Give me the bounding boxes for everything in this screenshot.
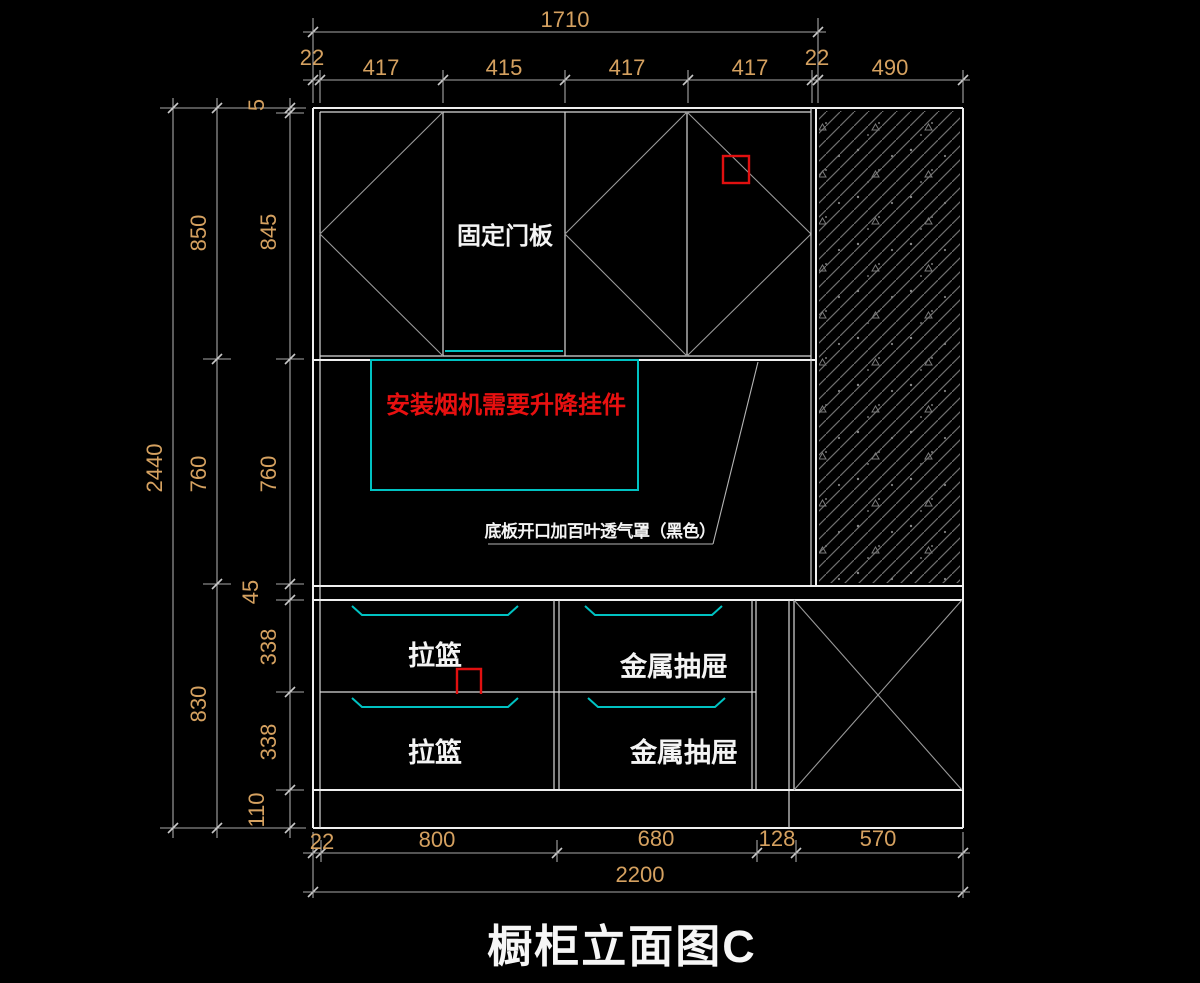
door-swing-left	[320, 112, 443, 356]
dim-bottom-128: 128	[759, 826, 796, 851]
dim-left-overall: 2440	[142, 444, 167, 493]
dim-left-45: 45	[238, 580, 263, 604]
drawing-title: 橱柜立面图C	[487, 921, 757, 972]
bottom-dimensions: 22 800 680 128 570 2200	[303, 826, 970, 898]
dim-top-22-right: 22	[805, 45, 829, 70]
handle-drawer-bottom	[588, 698, 725, 707]
door-swing-right	[687, 112, 811, 356]
dim-left-760-mid: 760	[186, 456, 211, 493]
dim-bottom-570: 570	[860, 826, 897, 851]
dim-left-760-inner: 760	[256, 456, 281, 493]
dim-top-417-3: 417	[732, 55, 769, 80]
vent-leader-line	[713, 362, 758, 544]
dim-left-338-top: 338	[256, 629, 281, 666]
dim-bottom-22: 22	[310, 829, 334, 854]
dim-bottom-overall: 2200	[616, 862, 665, 887]
elevation-drawing: 1710 22 417 415 417 417 22 490 2440 850 …	[0, 0, 1200, 983]
dim-top-490: 490	[872, 55, 909, 80]
dim-bottom-680: 680	[638, 826, 675, 851]
cabinet-structure	[313, 108, 963, 828]
red-marker-bottom	[457, 669, 481, 694]
dim-top-overall: 1710	[541, 7, 590, 32]
top-dimensions: 1710 22 417 415 417 417 22 490	[300, 7, 970, 103]
cad-canvas: 1710 22 417 415 417 417 22 490 2440 850 …	[0, 0, 1200, 983]
dim-left-5: 5	[244, 99, 269, 111]
dim-top-415: 415	[486, 55, 523, 80]
vent-note-label: 底板开口加百叶透气罩（黑色）	[485, 521, 716, 541]
metal-drawer-top-label: 金属抽屉	[619, 651, 728, 682]
left-dimensions: 2440 850 760 830 5 845 760 45 338 338 11…	[142, 98, 306, 838]
dim-left-110: 110	[244, 792, 269, 827]
dim-left-850: 850	[186, 215, 211, 252]
metal-drawer-bottom-label: 金属抽屉	[629, 737, 738, 768]
dim-left-845: 845	[256, 214, 281, 251]
dim-top-22-left: 22	[300, 45, 324, 70]
range-hood-box	[371, 360, 638, 490]
dim-bottom-800: 800	[419, 827, 456, 852]
dim-left-338-bottom: 338	[256, 724, 281, 761]
wall-hatch-spots	[819, 111, 960, 583]
door-swing-mid	[565, 112, 687, 356]
hood-note-label: 安装烟机需要升降挂件	[386, 391, 626, 419]
fixed-door-label: 固定门板	[457, 222, 554, 250]
handle-drawer-top	[585, 606, 722, 615]
dim-top-417-2: 417	[609, 55, 646, 80]
dim-top-417-1: 417	[363, 55, 400, 80]
pull-basket-top-label: 拉篮	[408, 640, 462, 671]
pull-basket-bottom-label: 拉篮	[408, 737, 462, 768]
handle-basket-top	[352, 606, 518, 615]
dim-left-830: 830	[186, 686, 211, 723]
drawing-labels: 固定门板 安装烟机需要升降挂件 底板开口加百叶透气罩（黑色） 拉篮 金属抽屉 拉…	[386, 222, 738, 768]
handle-basket-bottom	[352, 698, 518, 707]
